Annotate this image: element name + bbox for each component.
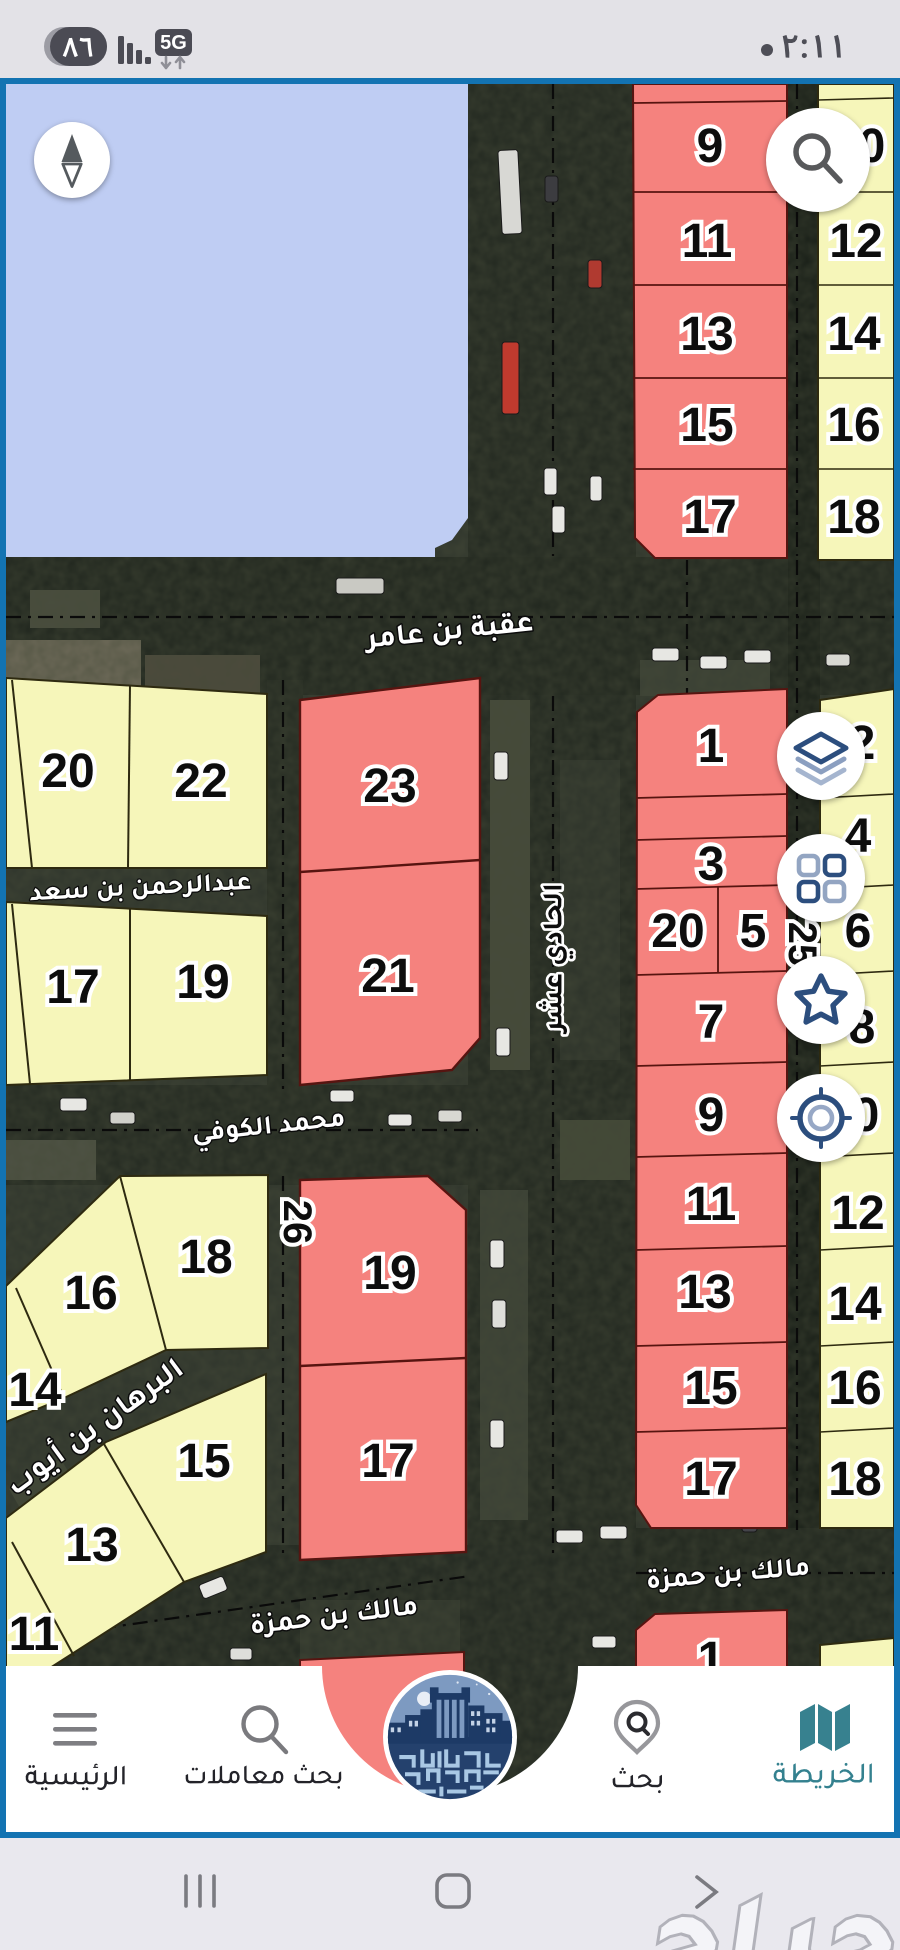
svg-text:14: 14	[827, 308, 881, 361]
svg-text:16: 16	[827, 399, 880, 452]
svg-text:14: 14	[8, 1364, 62, 1417]
svg-text:5G: 5G	[160, 32, 187, 54]
svg-text:19: 19	[176, 956, 229, 1009]
svg-text:1: 1	[698, 720, 725, 773]
svg-text:12: 12	[829, 215, 882, 268]
svg-text:21: 21	[361, 950, 414, 1003]
svg-text:12: 12	[831, 1187, 884, 1240]
svg-text:11: 11	[682, 215, 733, 268]
svg-text:14: 14	[828, 1278, 882, 1331]
svg-text:11: 11	[9, 1608, 60, 1661]
svg-text:16: 16	[64, 1267, 117, 1320]
svg-text:5: 5	[740, 905, 767, 958]
svg-text:17: 17	[683, 491, 736, 544]
svg-text:9: 9	[697, 120, 724, 173]
svg-text:15: 15	[684, 1362, 737, 1415]
svg-text:20: 20	[651, 905, 704, 958]
svg-text:16: 16	[828, 1362, 881, 1415]
svg-text:20: 20	[41, 745, 94, 798]
svg-text:15: 15	[177, 1435, 230, 1488]
svg-text:18: 18	[827, 491, 880, 544]
svg-text:13: 13	[65, 1519, 118, 1572]
svg-text:13: 13	[680, 308, 733, 361]
svg-text:11: 11	[686, 1178, 737, 1231]
svg-text:17: 17	[684, 1453, 737, 1506]
svg-text:9: 9	[698, 1089, 725, 1142]
svg-text:7: 7	[698, 996, 725, 1049]
svg-text:17: 17	[361, 1435, 414, 1488]
svg-text:23: 23	[363, 760, 416, 813]
svg-text:17: 17	[46, 961, 99, 1014]
svg-text:18: 18	[179, 1231, 232, 1284]
svg-text:26: 26	[275, 1200, 319, 1245]
svg-text:15: 15	[680, 399, 733, 452]
svg-text:3: 3	[698, 838, 725, 891]
svg-text:22: 22	[174, 755, 227, 808]
svg-text:18: 18	[828, 1453, 881, 1506]
svg-text:13: 13	[678, 1266, 731, 1319]
svg-text:19: 19	[363, 1247, 416, 1300]
